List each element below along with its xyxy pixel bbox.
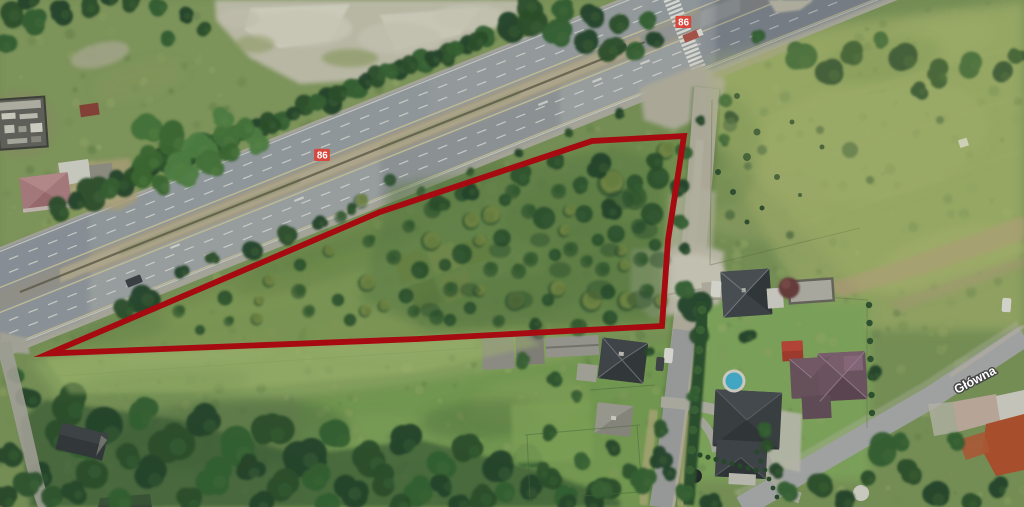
svg-text:86: 86: [678, 18, 689, 29]
svg-text:86: 86: [317, 151, 328, 162]
